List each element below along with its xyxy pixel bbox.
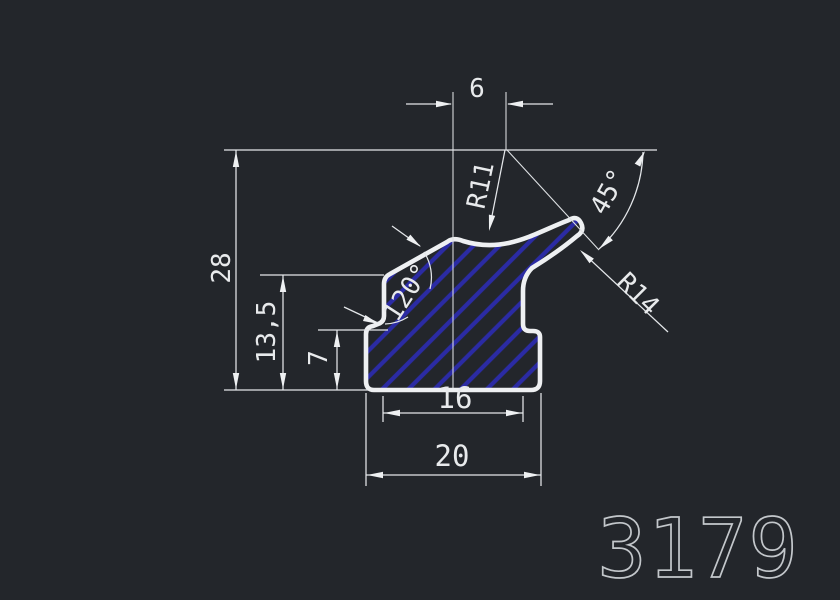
dim-text-r14: R14 xyxy=(610,267,664,321)
arrow-120-top xyxy=(406,235,423,250)
dim-text-45: 45° xyxy=(584,164,633,220)
arrow-28-top xyxy=(233,151,239,167)
arrow-r11 xyxy=(486,215,495,232)
arrow-28-bottom xyxy=(233,373,239,389)
cad-drawing: 6 28 13,5 7 16 xyxy=(0,0,840,600)
arrow-7-top xyxy=(334,331,340,347)
dim-width-top: 6 xyxy=(406,74,553,107)
arrow-135-bottom xyxy=(280,373,286,389)
arrow-16-left xyxy=(384,410,400,416)
dim-text-135: 13,5 xyxy=(252,301,282,364)
dim-angle-nose: 45° xyxy=(584,149,647,251)
cad-canvas[interactable]: 6 28 13,5 7 16 xyxy=(0,0,840,600)
dim-text-7: 7 xyxy=(304,350,334,366)
arrow-20-right xyxy=(524,472,540,478)
dim-text-20: 20 xyxy=(435,439,470,473)
leader-radius-nose: R14 xyxy=(578,248,668,332)
arrow-20-left xyxy=(367,472,383,478)
leader-radius-crest: R11 xyxy=(462,150,505,232)
dim-text-6: 6 xyxy=(469,74,485,104)
dim-height-shoulder: 13,5 xyxy=(252,275,286,390)
arrow-7-bottom xyxy=(334,373,340,389)
arrow-6-right xyxy=(507,101,523,107)
part-number: 3179 xyxy=(597,502,798,597)
arrow-45-top xyxy=(635,149,648,166)
arrow-135-top xyxy=(280,276,286,292)
dim-height-base: 7 xyxy=(304,330,340,390)
dim-height-total: 28 xyxy=(207,150,239,390)
dim-text-16: 16 xyxy=(438,381,473,415)
arrow-r14 xyxy=(578,248,594,264)
dim-text-28: 28 xyxy=(207,252,237,283)
arrow-16-right xyxy=(506,410,522,416)
arrow-6-left xyxy=(436,101,452,107)
dim-width-base: 20 xyxy=(366,439,541,478)
